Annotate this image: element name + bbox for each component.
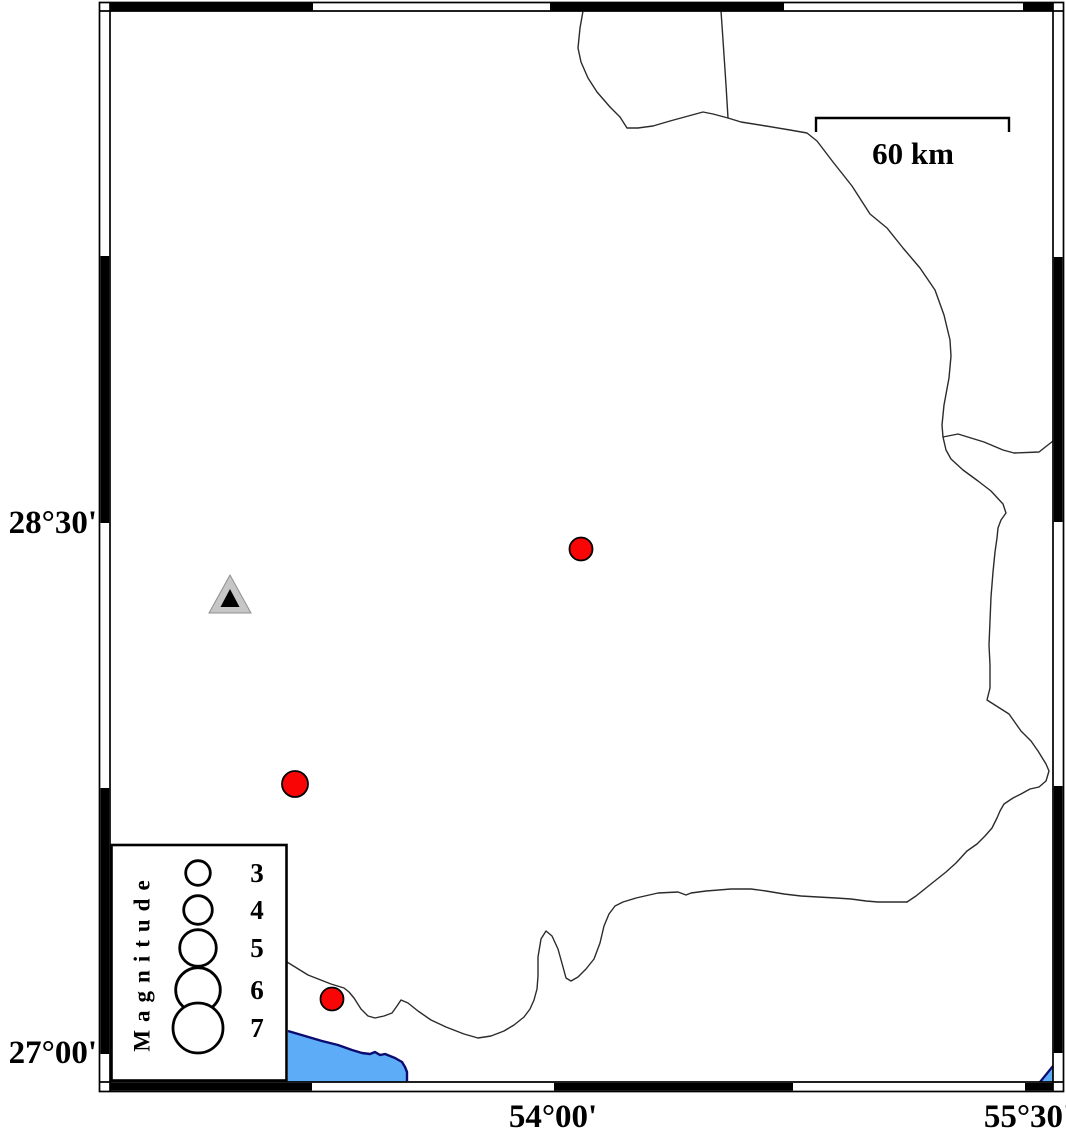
legend-label-m3: 3 [250, 858, 264, 888]
station-marker [209, 575, 251, 613]
legend-label-m5: 5 [250, 933, 264, 963]
epicenter-marker [321, 988, 344, 1011]
legend-label-m6: 6 [250, 975, 264, 1005]
boundary-branch-to-east-border [943, 434, 1053, 453]
legend-title: Magnitude [130, 872, 155, 1051]
epicenter-marker [570, 538, 593, 561]
map-canvas: 60 km 28°30' 27°00' 54°00' 55°30' Magnit… [0, 0, 1066, 1129]
sea-layer [288, 1031, 1053, 1082]
lat-label-2700: 27°00' [9, 1035, 97, 1071]
magnitude-legend: Magnitude 34567 [112, 845, 287, 1081]
lon-label-5530: 55°30' [984, 1099, 1066, 1129]
epicenter-marker [282, 771, 308, 797]
scale-bar-label: 60 km [872, 136, 954, 171]
legend-circle-m5 [180, 930, 217, 967]
lon-label-5400: 54°00' [509, 1099, 597, 1129]
scale-bar: 60 km [816, 118, 1009, 171]
legend-circle-m7 [173, 1003, 223, 1053]
legend-label-m4: 4 [250, 895, 264, 925]
legend-circle-m3 [186, 861, 211, 886]
seismicity-map-figure: 60 km 28°30' 27°00' 54°00' 55°30' Magnit… [0, 0, 1066, 1129]
scale-bar-bracket [816, 118, 1009, 132]
border-line-north [721, 11, 728, 118]
lat-label-2830: 28°30' [9, 505, 97, 541]
legend-label-m7: 7 [250, 1013, 264, 1043]
boundary-east-main [578, 11, 1049, 902]
coastline-south [287, 889, 907, 1038]
epicenter-layer [282, 538, 593, 1011]
legend-circle-m4 [184, 896, 213, 925]
